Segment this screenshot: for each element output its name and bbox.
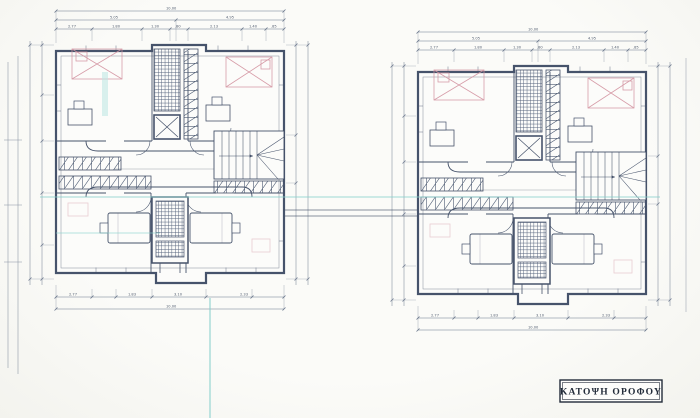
floor-plan-drawing: 10.00 5.05 4.95 2.77 1.80 1.30 .80 2.13 …: [0, 0, 700, 418]
title-block: ΚΑΤΟΨΗ ΟΡΟΦΟΥ: [560, 380, 662, 402]
blueprint-scan: 10.00 5.05 4.95 2.77 1.80 1.30 .80 2.13 …: [0, 0, 700, 418]
utility-highlight: [102, 72, 108, 116]
plot-boundary-left: [4, 56, 22, 374]
left-house-plan: [29, 7, 310, 311]
plot-connector-lines: [284, 210, 418, 216]
drawing-title: ΚΑΤΟΨΗ ΟΡΟΦΟΥ: [560, 388, 662, 398]
right-house-plan: [391, 28, 672, 332]
